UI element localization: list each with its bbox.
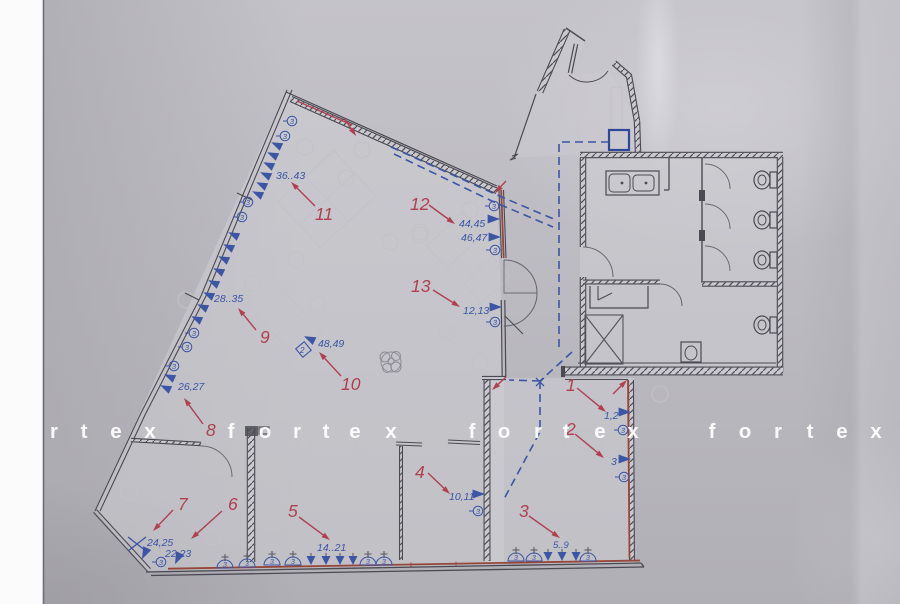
- svg-text:f: f: [469, 420, 476, 443]
- svg-text:28..35: 28..35: [213, 293, 243, 305]
- svg-text:x: x: [144, 420, 156, 443]
- svg-text:9: 9: [260, 327, 270, 347]
- svg-text:12,13: 12,13: [463, 305, 489, 317]
- svg-text:o: o: [259, 420, 272, 443]
- svg-text:3: 3: [586, 555, 590, 562]
- svg-text:f: f: [228, 420, 235, 443]
- svg-text:7: 7: [178, 494, 189, 514]
- svg-text:x: x: [385, 420, 397, 443]
- svg-text:3: 3: [245, 561, 249, 568]
- svg-text:o: o: [498, 420, 511, 443]
- svg-text:11: 11: [315, 204, 333, 224]
- svg-text:3: 3: [514, 555, 518, 562]
- svg-text:3: 3: [532, 555, 536, 562]
- svg-text:f: f: [709, 420, 716, 443]
- svg-text:44,45: 44,45: [459, 218, 485, 230]
- svg-text:o: o: [739, 420, 752, 443]
- svg-text:e: e: [836, 420, 847, 443]
- svg-text:1,2: 1,2: [604, 410, 619, 422]
- svg-text:5: 5: [288, 501, 298, 521]
- svg-text:4: 4: [415, 462, 425, 482]
- svg-text:e: e: [110, 420, 121, 443]
- svg-text:13: 13: [411, 276, 431, 296]
- svg-text:t: t: [807, 420, 814, 443]
- svg-text:14..21: 14..21: [317, 542, 346, 554]
- svg-text:1: 1: [566, 375, 576, 395]
- svg-text:r: r: [293, 420, 301, 443]
- svg-text:12: 12: [410, 194, 430, 214]
- svg-text:48,49: 48,49: [318, 338, 344, 350]
- svg-text:r: r: [50, 420, 58, 443]
- svg-text:r: r: [534, 420, 542, 443]
- svg-text:3: 3: [382, 559, 386, 566]
- svg-text:x: x: [870, 420, 882, 443]
- svg-text:3: 3: [519, 501, 529, 521]
- svg-text:3: 3: [366, 559, 370, 566]
- svg-text:2: 2: [299, 346, 305, 355]
- svg-text:3: 3: [611, 456, 617, 468]
- svg-text:8: 8: [206, 420, 216, 440]
- svg-text:26,27: 26,27: [177, 381, 205, 393]
- svg-text:10: 10: [341, 374, 361, 394]
- svg-text:6: 6: [228, 494, 238, 514]
- svg-text:t: t: [563, 420, 570, 443]
- svg-text:x: x: [627, 420, 639, 443]
- svg-text:36..43: 36..43: [276, 170, 305, 182]
- svg-text:e: e: [349, 420, 360, 443]
- svg-text:3: 3: [223, 562, 227, 569]
- svg-text:10,11: 10,11: [449, 491, 475, 503]
- svg-text:46,47: 46,47: [461, 232, 488, 244]
- svg-text:5..9: 5..9: [553, 540, 570, 551]
- svg-text:e: e: [594, 420, 605, 443]
- svg-text:r: r: [774, 420, 782, 443]
- svg-text:t: t: [81, 420, 88, 443]
- svg-text:3: 3: [270, 559, 274, 566]
- svg-text:3: 3: [291, 559, 295, 566]
- svg-text:t: t: [323, 420, 330, 443]
